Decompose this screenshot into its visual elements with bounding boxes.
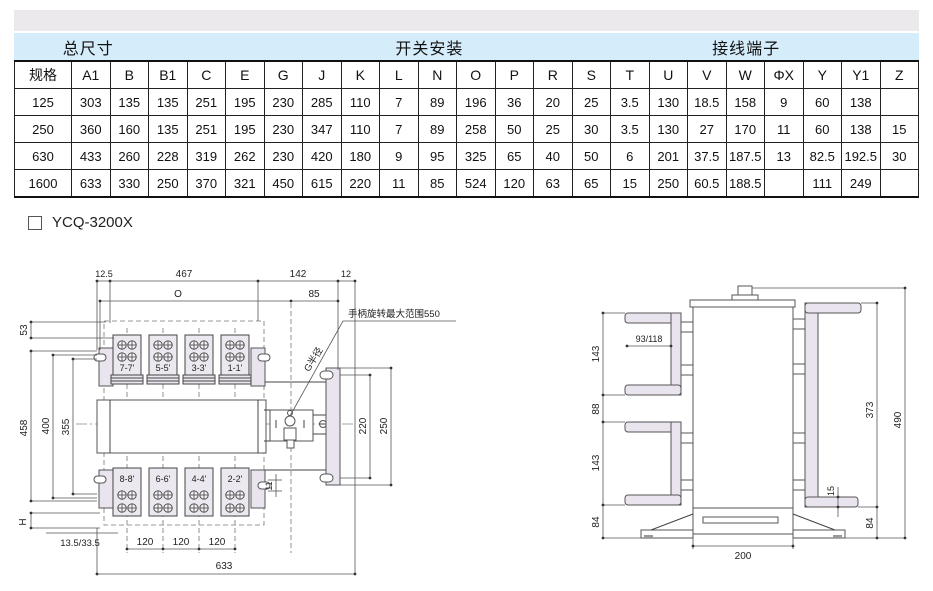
column-header: J — [303, 61, 342, 89]
column-header: V — [688, 61, 727, 89]
value-cell: 60.5 — [688, 170, 727, 198]
terminal-label-3: 3-3' — [192, 363, 207, 373]
value-cell: 3.5 — [611, 116, 650, 143]
column-header: L — [380, 61, 419, 89]
value-cell: 110 — [341, 116, 380, 143]
top-strip — [14, 10, 919, 31]
value-cell: 330 — [110, 170, 149, 198]
column-header: B — [110, 61, 149, 89]
value-cell: 251 — [187, 89, 226, 116]
value-cell: 3.5 — [611, 89, 650, 116]
value-cell: 13 — [765, 143, 804, 170]
value-cell: 30 — [572, 116, 611, 143]
table-row: 2503601601352511952303471107892585025303… — [15, 116, 919, 143]
dim-53: 53 — [19, 324, 30, 336]
dim-250: 250 — [379, 417, 390, 434]
dim-120-c: 120 — [209, 537, 226, 548]
column-header: C — [187, 61, 226, 89]
value-cell: 230 — [264, 116, 303, 143]
column-header: E — [226, 61, 265, 89]
value-cell: 11 — [765, 116, 804, 143]
value-cell: 285 — [303, 89, 342, 116]
column-header: R — [534, 61, 573, 89]
value-cell: 27 — [688, 116, 727, 143]
value-cell — [765, 170, 804, 198]
value-cell: 170 — [726, 116, 765, 143]
value-cell: 450 — [264, 170, 303, 198]
value-cell: 321 — [226, 170, 265, 198]
value-cell: 18.5 — [688, 89, 727, 116]
value-cell: 50 — [495, 116, 534, 143]
dim-88: 88 — [591, 403, 602, 415]
value-cell: 195 — [226, 89, 265, 116]
value-cell: 89 — [418, 89, 457, 116]
dim-85: 85 — [308, 289, 320, 300]
column-header: S — [572, 61, 611, 89]
column-header: T — [611, 61, 650, 89]
value-cell: 192.5 — [842, 143, 881, 170]
dim-H: H — [18, 518, 29, 525]
table-row: 6304332602283192622304201809953256540506… — [15, 143, 919, 170]
value-cell: 325 — [457, 143, 496, 170]
terminal-blocks-top: 7-7' 5-5' 3-3' 1-1' — [111, 335, 251, 384]
value-cell: 250 — [649, 170, 688, 198]
spec-table-body: 1253031351352511952302851107891963620253… — [15, 89, 919, 198]
column-header: B1 — [149, 61, 188, 89]
dim-633: 633 — [216, 561, 233, 572]
dim-13-5-33-5: 13.5/33.5 — [60, 538, 100, 549]
terminal-label-2: 2-2' — [228, 474, 243, 484]
value-cell: 65 — [495, 143, 534, 170]
value-cell: 230 — [264, 89, 303, 116]
value-cell: 260 — [110, 143, 149, 170]
value-cell: 9 — [380, 143, 419, 170]
value-cell: 433 — [72, 143, 111, 170]
dim-12: 12 — [341, 269, 351, 279]
column-header: G — [264, 61, 303, 89]
value-cell: 615 — [303, 170, 342, 198]
side-view-drawing: 93/118 143 88 143 84 373 490 15 84 200 — [585, 262, 933, 587]
dim-120-a: 120 — [137, 537, 154, 548]
value-cell: 11 — [380, 170, 419, 198]
value-cell: 6 — [611, 143, 650, 170]
group-header-overall-size: 总尺寸 — [63, 35, 114, 59]
dim-93-118: 93/118 — [636, 334, 663, 344]
group-header-terminals: 接线端子 — [712, 35, 780, 59]
dim-200: 200 — [735, 551, 752, 562]
spec-cell: 125 — [15, 89, 72, 116]
terminal-label-6: 6-6' — [156, 474, 171, 484]
value-cell: 50 — [572, 143, 611, 170]
value-cell: 228 — [149, 143, 188, 170]
terminal-label-5: 5-5' — [156, 363, 171, 373]
dim-373: 373 — [865, 401, 876, 418]
value-cell: 9 — [765, 89, 804, 116]
terminal-label-4: 4-4' — [192, 474, 207, 484]
terminal-label-8: 8-8' — [120, 474, 135, 484]
column-header-row: 规格A1BB1CEGJKLNOPRSTUVWΦXYY1Z — [15, 61, 919, 89]
table-group-header-band: 总尺寸 开关安装 接线端子 — [14, 33, 919, 60]
value-cell: 60 — [803, 116, 842, 143]
value-cell: 258 — [457, 116, 496, 143]
dim-O: O — [174, 289, 182, 300]
value-cell: 249 — [842, 170, 881, 198]
middle-band — [97, 400, 266, 453]
value-cell: 25 — [534, 116, 573, 143]
value-cell: 37.5 — [688, 143, 727, 170]
value-cell: 180 — [341, 143, 380, 170]
column-header: ΦX — [765, 61, 804, 89]
value-cell: 135 — [149, 89, 188, 116]
value-cell: 360 — [72, 116, 111, 143]
model-label: YCQ-3200X — [52, 214, 133, 231]
value-cell: 15 — [611, 170, 650, 198]
column-header: O — [457, 61, 496, 89]
terminal-blocks-bottom: 8-8' 6-6' 4-4' 2-2' — [113, 468, 249, 516]
column-header: W — [726, 61, 765, 89]
dim-143-lower: 143 — [591, 454, 602, 471]
value-cell: 319 — [187, 143, 226, 170]
column-header: P — [495, 61, 534, 89]
value-cell: 370 — [187, 170, 226, 198]
value-cell: 420 — [303, 143, 342, 170]
value-cell: 36 — [495, 89, 534, 116]
dim-400: 400 — [41, 417, 52, 434]
value-cell: 89 — [418, 116, 457, 143]
value-cell: 158 — [726, 89, 765, 116]
column-header: U — [649, 61, 688, 89]
dim-11: 11 — [264, 481, 274, 490]
dim-490: 490 — [893, 411, 904, 428]
value-cell: 7 — [380, 116, 419, 143]
datasheet-page: 总尺寸 开关安装 接线端子 规格A1BB1CEGJKLNOPRSTUVWΦXYY… — [0, 0, 933, 591]
column-header: A1 — [72, 61, 111, 89]
value-cell: 130 — [649, 116, 688, 143]
value-cell: 65 — [572, 170, 611, 198]
value-cell: 85 — [418, 170, 457, 198]
value-cell: 60 — [803, 89, 842, 116]
value-cell: 30 — [880, 143, 919, 170]
column-header: N — [418, 61, 457, 89]
spec-cell: 630 — [15, 143, 72, 170]
value-cell: 347 — [303, 116, 342, 143]
value-cell: 138 — [842, 116, 881, 143]
spec-cell: 250 — [15, 116, 72, 143]
spec-cell: 1600 — [15, 170, 72, 198]
value-cell: 40 — [534, 143, 573, 170]
value-cell: 187.5 — [726, 143, 765, 170]
column-header: 规格 — [15, 61, 72, 89]
column-header: K — [341, 61, 380, 89]
dim-84-right: 84 — [865, 517, 876, 529]
value-cell: 95 — [418, 143, 457, 170]
value-cell: 82.5 — [803, 143, 842, 170]
model-checkbox-icon — [28, 216, 42, 230]
value-cell — [880, 170, 919, 198]
dim-220: 220 — [358, 417, 369, 434]
value-cell: 7 — [380, 89, 419, 116]
value-cell: 111 — [803, 170, 842, 198]
value-cell: 303 — [72, 89, 111, 116]
dim-467: 467 — [176, 269, 193, 280]
value-cell: 251 — [187, 116, 226, 143]
table-row: 1253031351352511952302851107891963620253… — [15, 89, 919, 116]
column-header: Y1 — [842, 61, 881, 89]
dim-120-b: 120 — [173, 537, 190, 548]
value-cell: 250 — [149, 170, 188, 198]
value-cell: 20 — [534, 89, 573, 116]
handle-rotation-note: 手柄旋转最大范围550 — [348, 308, 440, 320]
value-cell: 524 — [457, 170, 496, 198]
spec-table: 规格A1BB1CEGJKLNOPRSTUVWΦXYY1Z 12530313513… — [14, 60, 919, 198]
value-cell: 230 — [264, 143, 303, 170]
value-cell: 220 — [341, 170, 380, 198]
value-cell: 196 — [457, 89, 496, 116]
value-cell: 110 — [341, 89, 380, 116]
dim-143-upper: 143 — [591, 345, 602, 362]
front-view-drawing: 7-7' 5-5' 3-3' 1-1' 8-8' 6-6' — [18, 258, 462, 588]
value-cell — [880, 89, 919, 116]
model-row: YCQ-3200X — [28, 214, 133, 231]
terminal-label-7: 7-7' — [120, 363, 135, 373]
value-cell: 130 — [649, 89, 688, 116]
dim-458: 458 — [19, 419, 30, 436]
right-terminal-bracket — [793, 303, 861, 507]
value-cell: 135 — [149, 116, 188, 143]
value-cell: 633 — [72, 170, 111, 198]
value-cell: 160 — [110, 116, 149, 143]
dim-355: 355 — [61, 418, 72, 435]
dim-12-5: 12.5 — [95, 269, 113, 279]
dim-84-left: 84 — [591, 516, 602, 528]
value-cell: 135 — [110, 89, 149, 116]
value-cell: 262 — [226, 143, 265, 170]
handle-assembly — [264, 410, 327, 448]
dim-142: 142 — [290, 269, 307, 280]
value-cell: 201 — [649, 143, 688, 170]
dim-15: 15 — [826, 486, 836, 496]
value-cell: 195 — [226, 116, 265, 143]
terminal-label-1: 1-1' — [228, 363, 243, 373]
value-cell: 138 — [842, 89, 881, 116]
group-header-switch-install: 开关安装 — [395, 35, 463, 59]
value-cell: 25 — [572, 89, 611, 116]
value-cell: 63 — [534, 170, 573, 198]
table-row: 1600633330250370321450615220118552412063… — [15, 170, 919, 198]
value-cell: 120 — [495, 170, 534, 198]
value-cell: 15 — [880, 116, 919, 143]
column-header: Y — [803, 61, 842, 89]
column-header: Z — [880, 61, 919, 89]
value-cell: 188.5 — [726, 170, 765, 198]
